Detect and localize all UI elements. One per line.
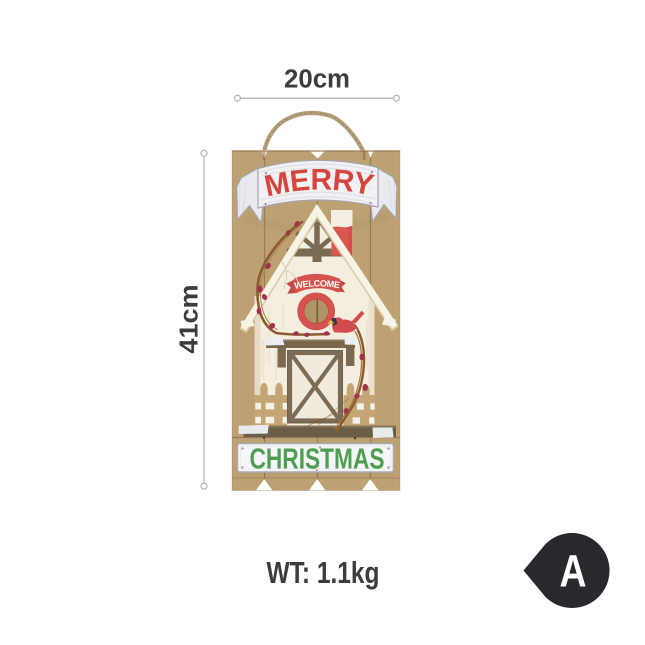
svg-text:CHRISTMAS: CHRISTMAS [250,444,385,476]
svg-text:WT: 1.1kg: WT: 1.1kg [267,556,380,590]
svg-text:20cm: 20cm [284,66,350,94]
svg-text:A: A [560,546,587,597]
svg-text:41cm: 41cm [174,285,204,354]
